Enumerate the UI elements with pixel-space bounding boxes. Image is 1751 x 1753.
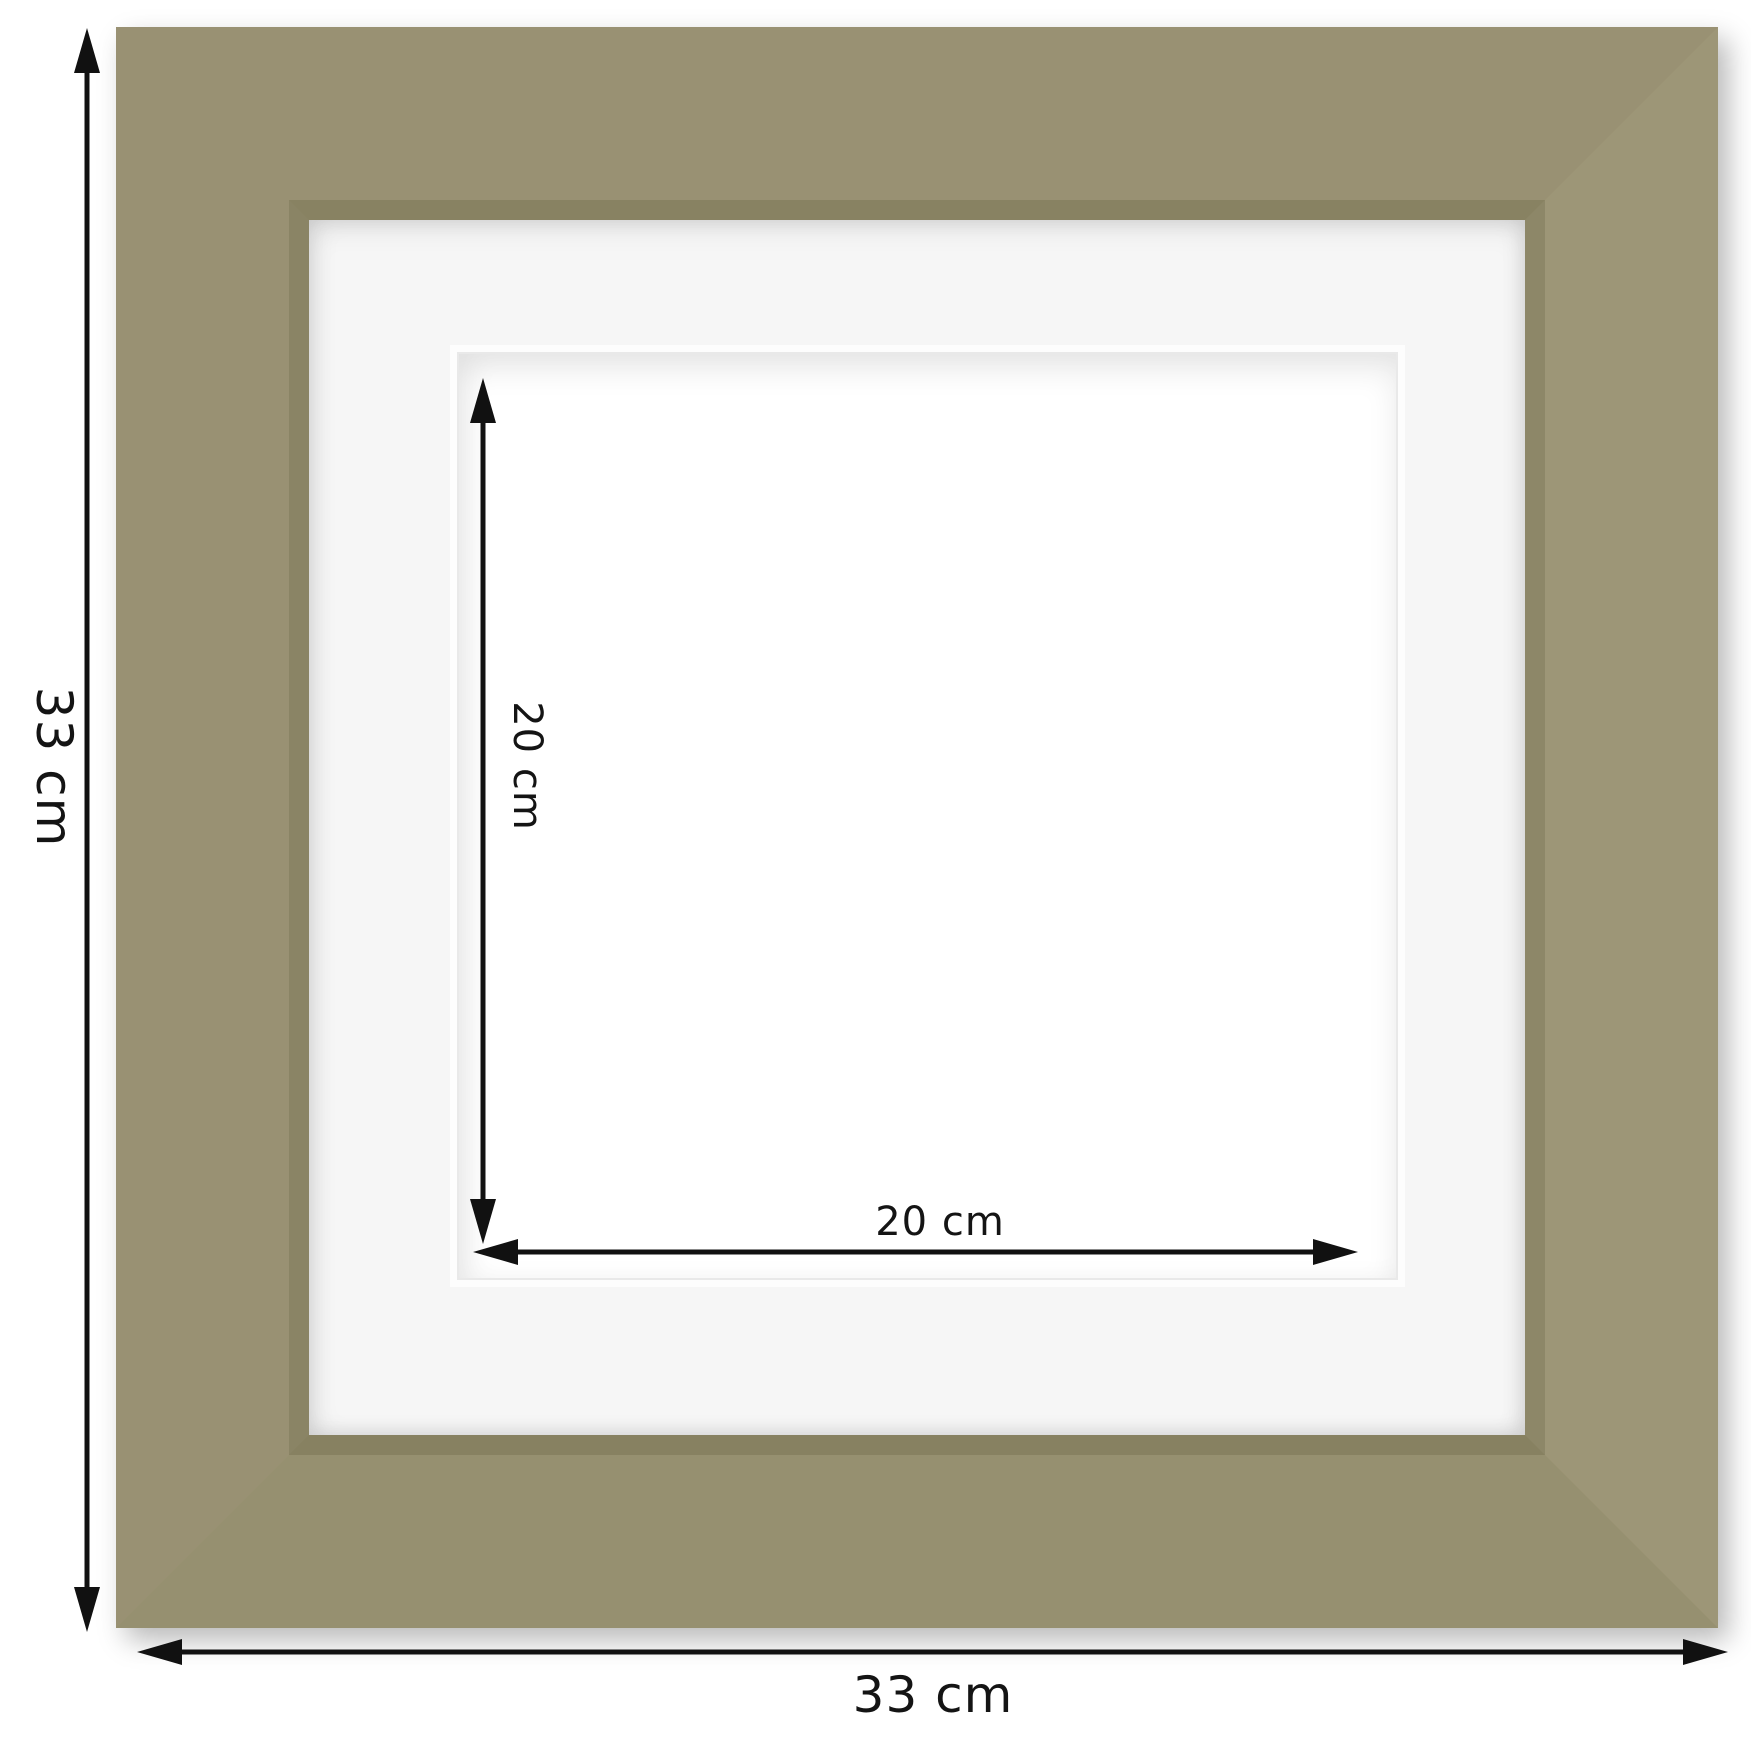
frame-inner-bevel — [289, 200, 1545, 1455]
inner-height-label: 20 cm — [507, 701, 547, 831]
mat-board — [309, 220, 1525, 1435]
outer-height-label: 33 cm — [29, 687, 79, 848]
inner-width-label: 20 cm — [875, 1202, 1005, 1242]
mat-aperture — [457, 352, 1398, 1280]
frame-dimension-diagram: 33 cm 20 cm 20 cm 33 cm — [0, 0, 1751, 1753]
picture-frame — [116, 27, 1718, 1628]
outer-width-label: 33 cm — [853, 1670, 1014, 1720]
outer-width-dimension-arrow-icon — [137, 1639, 1728, 1665]
